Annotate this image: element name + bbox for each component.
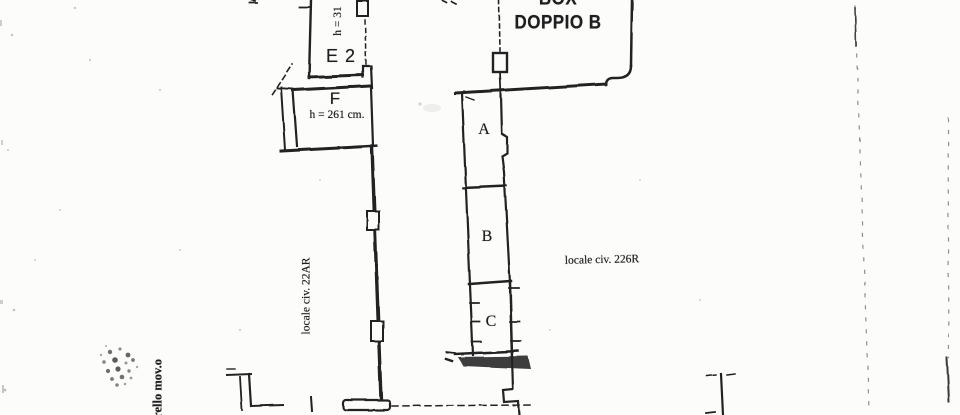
door-symbol bbox=[493, 53, 507, 72]
room-a-label: A bbox=[473, 121, 495, 139]
room-b-label: B bbox=[476, 228, 498, 246]
hatched-wedge bbox=[458, 356, 531, 369]
room-c-label: C bbox=[480, 313, 502, 331]
room-e2-height-note: h = 31 bbox=[332, 1, 344, 41]
room-f-height-note: h = 261 cm. bbox=[296, 109, 378, 121]
floorplan-scan: BOX DOPPIO B E 2 h = 31 F h = 261 cm. A … bbox=[0, 0, 960, 415]
pillar-symbol-2 bbox=[371, 321, 383, 341]
box-doppio-label-line2: DOPPIO B bbox=[498, 10, 618, 34]
rooms-abc-walls bbox=[446, 93, 531, 415]
locale-right-annotation: locale civ. 226R bbox=[554, 253, 650, 267]
scan-noise-blob bbox=[100, 345, 138, 387]
locale-left-annotation: locale civ. 22AR bbox=[301, 248, 313, 345]
box-doppio-label-line1: BOX bbox=[498, 0, 618, 10]
low-wall-symbol bbox=[343, 400, 390, 410]
box-doppio-label: BOX DOPPIO B bbox=[498, 0, 618, 34]
pillar-symbol-1 bbox=[367, 211, 379, 230]
dashed-threshold bbox=[392, 405, 533, 406]
long-wall bbox=[367, 146, 383, 400]
cut-glyph-fragment bbox=[250, 0, 257, 3]
window-symbol-e2 bbox=[357, 1, 368, 16]
bottom-right-walls bbox=[706, 374, 735, 415]
bottom-left-annotation: trello mov.o bbox=[151, 347, 166, 415]
room-f-label: F bbox=[322, 89, 348, 109]
fold-lines bbox=[855, 6, 949, 410]
room-e2-label: E 2 bbox=[320, 46, 362, 67]
plan-linework bbox=[0, 0, 960, 415]
